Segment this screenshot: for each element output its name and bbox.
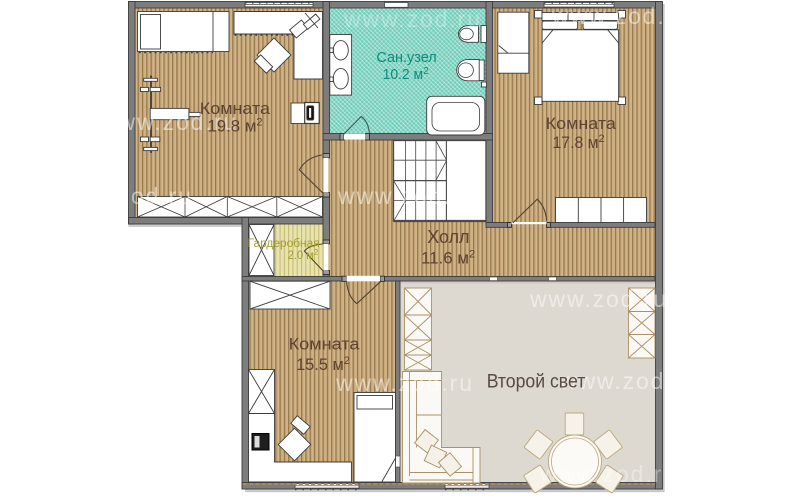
svg-text:www.zod.ru: www.zod.ru (335, 370, 472, 396)
svg-text:www.zod.ru: www.zod.ru (337, 183, 474, 209)
svg-text:15.5 м2: 15.5 м2 (296, 355, 350, 374)
svg-text:10.2 м2: 10.2 м2 (383, 66, 430, 83)
svg-text:www.zod.ru: www.zod.ru (539, 461, 676, 487)
svg-text:Холл: Холл (427, 227, 469, 247)
svg-text:11.6 м2: 11.6 м2 (421, 249, 475, 268)
svg-text:www.zod.ru: www.zod.ru (343, 6, 480, 32)
svg-text:Комната: Комната (546, 114, 617, 133)
svg-text:Сан.узел: Сан.узел (376, 49, 436, 66)
svg-text:Комната: Комната (200, 99, 271, 118)
svg-text:Комната: Комната (289, 334, 360, 353)
svg-text:19.8 м2: 19.8 м2 (207, 117, 262, 136)
svg-text:Гардеробная: Гардеробная (248, 238, 320, 250)
svg-text:Второй свет: Второй свет (487, 371, 586, 392)
svg-text:www.zod.ru: www.zod.ru (54, 183, 191, 209)
svg-text:www.zod.ru: www.zod.ru (529, 286, 666, 312)
svg-text:17.8 м2: 17.8 м2 (553, 133, 605, 152)
svg-text:www.zod.ru: www.zod.ru (551, 3, 688, 29)
